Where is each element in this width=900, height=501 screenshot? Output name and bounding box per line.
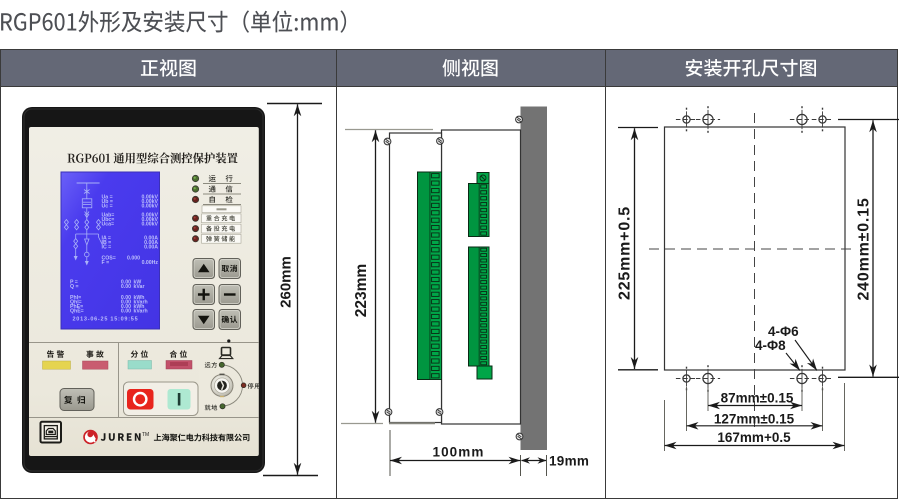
svg-text:0.000: 0.000 [127, 256, 140, 262]
svg-text:4-Φ6: 4-Φ6 [768, 324, 799, 339]
svg-text:167mm+0.5: 167mm+0.5 [717, 430, 791, 445]
svg-text:0.00kV: 0.00kV [142, 222, 159, 228]
svg-text:240mm±0.15: 240mm±0.15 [856, 197, 873, 300]
svg-text:223mm: 223mm [353, 264, 370, 317]
svg-text:0.00: 0.00 [121, 284, 131, 290]
svg-text:100mm: 100mm [432, 445, 484, 460]
svg-text:2013-06-25 15:09:55: 2013-06-25 15:09:55 [73, 317, 139, 323]
svg-text:0.00Hz: 0.00Hz [142, 260, 159, 266]
svg-text:kVarh: kVarh [134, 309, 148, 315]
svg-text:0.00A: 0.00A [144, 245, 158, 251]
svg-text:225mm+0.5: 225mm+0.5 [617, 206, 634, 300]
svg-text:TM: TM [142, 432, 149, 438]
svg-text:QhE=: QhE= [70, 309, 84, 315]
svg-text:Q =: Q = [70, 284, 79, 290]
svg-text:0.00kV: 0.00kV [142, 204, 159, 210]
svg-text:F =: F = [102, 260, 110, 266]
svg-text:kVar: kVar [134, 284, 145, 290]
svg-text:127mm±0.15: 127mm±0.15 [714, 411, 795, 426]
svg-text:IC =: IC = [102, 245, 112, 251]
svg-text:4-Φ8: 4-Φ8 [755, 338, 786, 353]
svg-text:87mm±0.15: 87mm±0.15 [721, 391, 794, 406]
svg-text:260mm: 260mm [277, 256, 294, 308]
svg-text:0.00: 0.00 [121, 309, 131, 315]
svg-text:19mm: 19mm [549, 454, 589, 469]
svg-text:Uca=: Uca= [102, 222, 115, 228]
svg-text:Uc =: Uc = [102, 204, 113, 210]
